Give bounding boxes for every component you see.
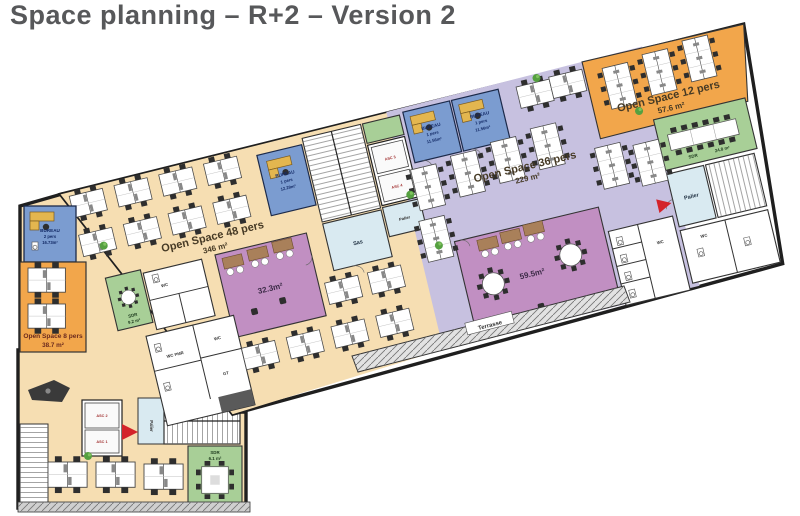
desk-cluster-4	[28, 299, 65, 334]
main-building-bar: Open Space 48 pers 346 m² Open Space 36 …	[59, 22, 800, 441]
label-asc1: ASC 1	[96, 440, 107, 444]
label-os8-name: Open Space 8 pers	[23, 333, 83, 340]
desk-cluster-4	[28, 263, 65, 298]
label-asc2: ASC 2	[96, 414, 107, 418]
label-bureau-left-area: 16.73m²	[42, 240, 58, 245]
label-os8-area: 38.7 m²	[42, 342, 64, 349]
wing-elevators	[82, 400, 122, 456]
wing-terrace-band	[18, 502, 250, 512]
label-sdr6-area: 6.1 m²	[209, 456, 222, 461]
desk-cluster-4	[48, 456, 87, 493]
plant	[84, 452, 92, 460]
desk-cluster-4	[144, 458, 183, 495]
label-bureau-left-cap: 2 pers	[44, 234, 57, 239]
label-bureau-left-name: BUREAU	[40, 228, 60, 233]
floor-plan: Open Space 48 pers 346 m² Open Space 36 …	[0, 0, 800, 516]
square-table	[196, 461, 234, 499]
desk-cluster-4	[96, 456, 135, 493]
toilet	[32, 242, 38, 250]
wing-ladder-strip	[20, 424, 48, 506]
page: { "title": "Space planning – R+2 – Versi…	[0, 0, 800, 516]
page-title: Space planning – R+2 – Version 2	[10, 0, 456, 31]
label-wing-palier: Palier	[149, 420, 154, 432]
label-sdr6-name: SDR	[210, 450, 220, 455]
